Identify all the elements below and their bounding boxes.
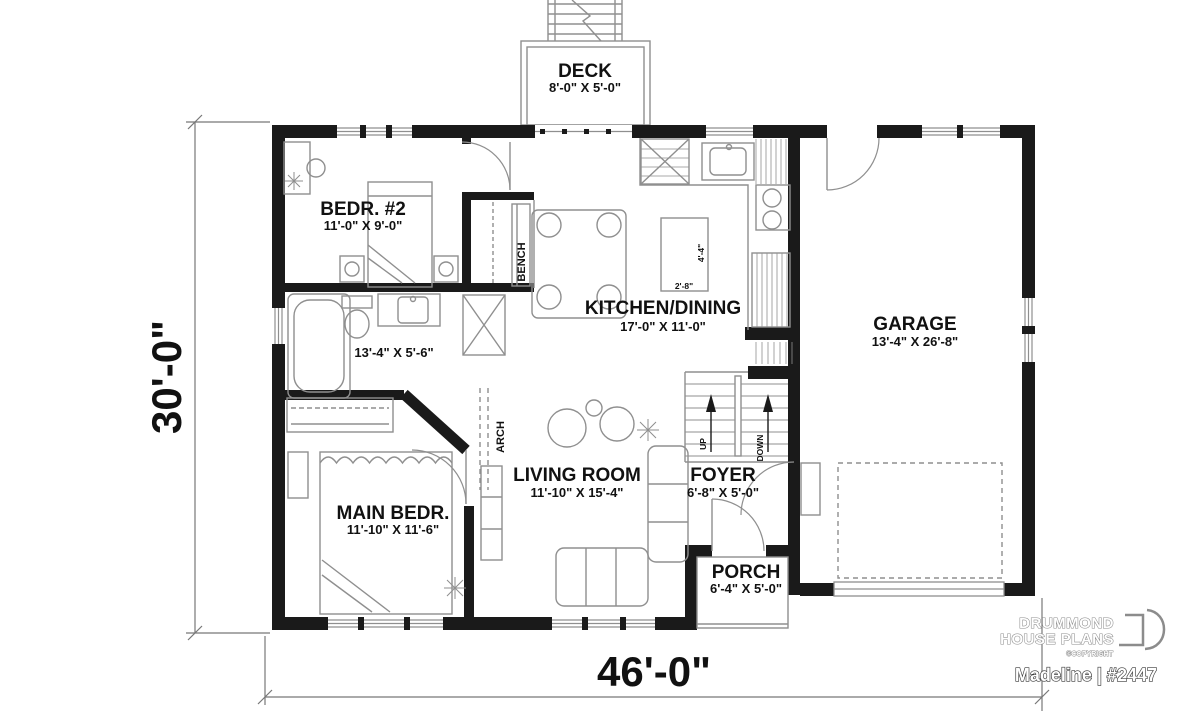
room-label-mainbed: MAIN BEDR.: [337, 503, 450, 524]
room-size-porch: 6'-4" X 5'-0": [710, 581, 782, 596]
stairs-down-label: DOWN: [755, 435, 765, 462]
room-label-living: LIVING ROOM: [513, 465, 641, 486]
angled-wall: [404, 394, 466, 450]
room-size-bathroom: 13'-4" X 5'-6": [354, 345, 433, 360]
room-size-foyer: 6'-8" X 5'-0": [687, 485, 759, 500]
stairs-up-label: UP: [698, 438, 708, 450]
brand-name-line1: DRUMMOND: [1019, 615, 1114, 632]
annotations: BENCH ARCH UP DOWN 4'-4" 2'-8": [495, 242, 765, 461]
drummond-logo-icon: [1119, 615, 1143, 645]
floor-plan-sheet: 30'-0" 46'-0": [0, 0, 1200, 711]
room-label-garage: GARAGE: [873, 314, 956, 335]
room-labels: DECK 8'-0" X 5'-0" BEDR. #2 11'-0" X 9'-…: [320, 61, 958, 596]
brand-copyright: ©COPYRIGHT: [1066, 650, 1113, 658]
room-size-living: 11'-10" X 15'-4": [531, 485, 624, 500]
total-width-dimension: 46'-0": [597, 648, 711, 695]
room-label-porch: PORCH: [712, 562, 781, 583]
room-label-deck: DECK: [558, 61, 612, 82]
room-size-kitchen: 17'-0" X 11'-0": [620, 319, 706, 334]
island-width-label: 2'-8": [675, 281, 693, 291]
room-size-bedroom2: 11'-0" X 9'-0": [324, 218, 403, 233]
island-depth-label: 4'-4": [696, 244, 706, 262]
plan-name-number: Madeline | #2447: [1015, 665, 1157, 685]
total-depth-dimension: 30'-0": [143, 320, 190, 434]
room-size-garage: 13'-4" X 26'-8": [872, 334, 958, 349]
brand-block: DRUMMOND HOUSE PLANS ©COPYRIGHT Madeline…: [1000, 610, 1164, 685]
room-label-foyer: FOYER: [690, 465, 756, 486]
drummond-logo-curve: [1145, 610, 1164, 649]
floor-plan-drawing: 30'-0" 46'-0": [0, 0, 1200, 711]
arch-label: ARCH: [495, 421, 507, 453]
room-size-deck: 8'-0" X 5'-0": [549, 80, 621, 95]
room-label-kitchen: KITCHEN/DINING: [585, 298, 741, 319]
bench-label: BENCH: [516, 242, 528, 281]
room-size-mainbed: 11'-10" X 11'-6": [347, 522, 439, 537]
room-label-bedroom2: BEDR. #2: [320, 199, 406, 220]
brand-name-line2: HOUSE PLANS: [1000, 631, 1114, 648]
